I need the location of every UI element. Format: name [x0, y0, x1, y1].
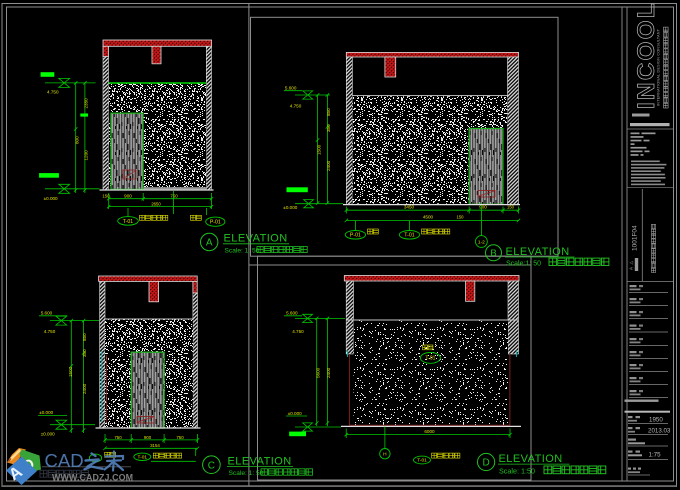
- svg-text:4.750: 4.750: [292, 329, 304, 334]
- svg-text:2650: 2650: [151, 201, 161, 206]
- svg-text:±0.000: ±0.000: [283, 205, 297, 210]
- svg-text:1950: 1950: [649, 417, 663, 424]
- svg-text:C: C: [208, 460, 215, 471]
- svg-text:750: 750: [176, 435, 184, 440]
- svg-text:4.750: 4.750: [290, 103, 302, 108]
- svg-text:5.600: 5.600: [41, 311, 53, 316]
- svg-text:WWW.CADZJ.COM: WWW.CADZJ.COM: [52, 473, 133, 483]
- svg-text:Scale: 1: 50: Scale: 1: 50: [225, 247, 260, 254]
- svg-text:150: 150: [102, 194, 110, 199]
- svg-text:5.600: 5.600: [286, 311, 298, 316]
- svg-text:2400: 2400: [326, 160, 331, 171]
- svg-text:850: 850: [82, 333, 87, 341]
- svg-text:350: 350: [82, 349, 87, 357]
- svg-text:T-01: T-01: [417, 458, 427, 464]
- svg-text:±0.000: ±0.000: [41, 431, 55, 436]
- svg-text:3450: 3450: [404, 205, 415, 210]
- svg-text:ELEVATION: ELEVATION: [506, 246, 570, 258]
- svg-text:2013.03: 2013.03: [648, 428, 671, 435]
- svg-text:4.750: 4.750: [47, 89, 59, 94]
- svg-text:6000: 6000: [424, 429, 435, 434]
- svg-text:1:75: 1:75: [649, 452, 662, 459]
- svg-text:1001F04: 1001F04: [632, 225, 639, 251]
- svg-text:1200: 1200: [84, 150, 89, 161]
- svg-text:1500: 1500: [68, 366, 73, 377]
- svg-text:900: 900: [124, 194, 132, 199]
- svg-text:750: 750: [170, 194, 178, 199]
- svg-text:900: 900: [479, 205, 487, 210]
- svg-text:H: H: [383, 452, 387, 458]
- svg-text:150: 150: [507, 205, 515, 210]
- svg-text:5600: 5600: [315, 367, 320, 378]
- svg-text:900: 900: [144, 435, 152, 440]
- svg-text:T-01: T-01: [137, 455, 147, 461]
- svg-text:4500: 4500: [423, 214, 434, 219]
- svg-text:D: D: [482, 458, 489, 469]
- svg-text:Scale:1: 50: Scale:1: 50: [506, 260, 541, 267]
- svg-text:ELEVATION: ELEVATION: [499, 453, 563, 465]
- svg-text:T-01: T-01: [123, 219, 133, 225]
- svg-text:A: A: [206, 238, 213, 249]
- svg-text:T-01: T-01: [425, 356, 435, 362]
- svg-text:ELEVATION: ELEVATION: [228, 455, 292, 467]
- svg-text:3154: 3154: [150, 443, 160, 448]
- svg-text:2400: 2400: [326, 367, 331, 378]
- svg-text:750: 750: [114, 435, 122, 440]
- svg-text:±0.000: ±0.000: [39, 410, 53, 415]
- svg-text:850: 850: [326, 108, 331, 116]
- svg-text:800: 800: [74, 136, 79, 144]
- svg-text:4.750: 4.750: [44, 329, 56, 334]
- svg-text:5.600: 5.600: [285, 85, 297, 90]
- svg-text:2400: 2400: [82, 383, 87, 394]
- svg-text:±0.000: ±0.000: [288, 411, 302, 416]
- svg-text:Scale: 1:50: Scale: 1:50: [499, 466, 535, 475]
- svg-text:1500: 1500: [316, 144, 321, 155]
- svg-text:B: B: [490, 248, 496, 259]
- svg-text:P-01: P-01: [210, 220, 221, 226]
- svg-text:INTERNATIONAL DESIGN CONSULT: INTERNATIONAL DESIGN CONSULTANT: [657, 28, 661, 106]
- svg-text:CAD: CAD: [45, 450, 84, 471]
- svg-text:Scale: 1: 50: Scale: 1: 50: [229, 470, 264, 477]
- svg-text:350: 350: [326, 124, 331, 132]
- svg-text:A △: A △: [629, 260, 634, 270]
- svg-text:P-01: P-01: [350, 233, 361, 239]
- svg-text:±0.000: ±0.000: [44, 196, 58, 201]
- svg-text:T-01: T-01: [404, 233, 414, 239]
- svg-text:150: 150: [457, 214, 465, 219]
- svg-text:2350: 2350: [84, 98, 89, 109]
- svg-text:ELEVATION: ELEVATION: [224, 233, 288, 245]
- svg-text:1-2: 1-2: [478, 240, 485, 246]
